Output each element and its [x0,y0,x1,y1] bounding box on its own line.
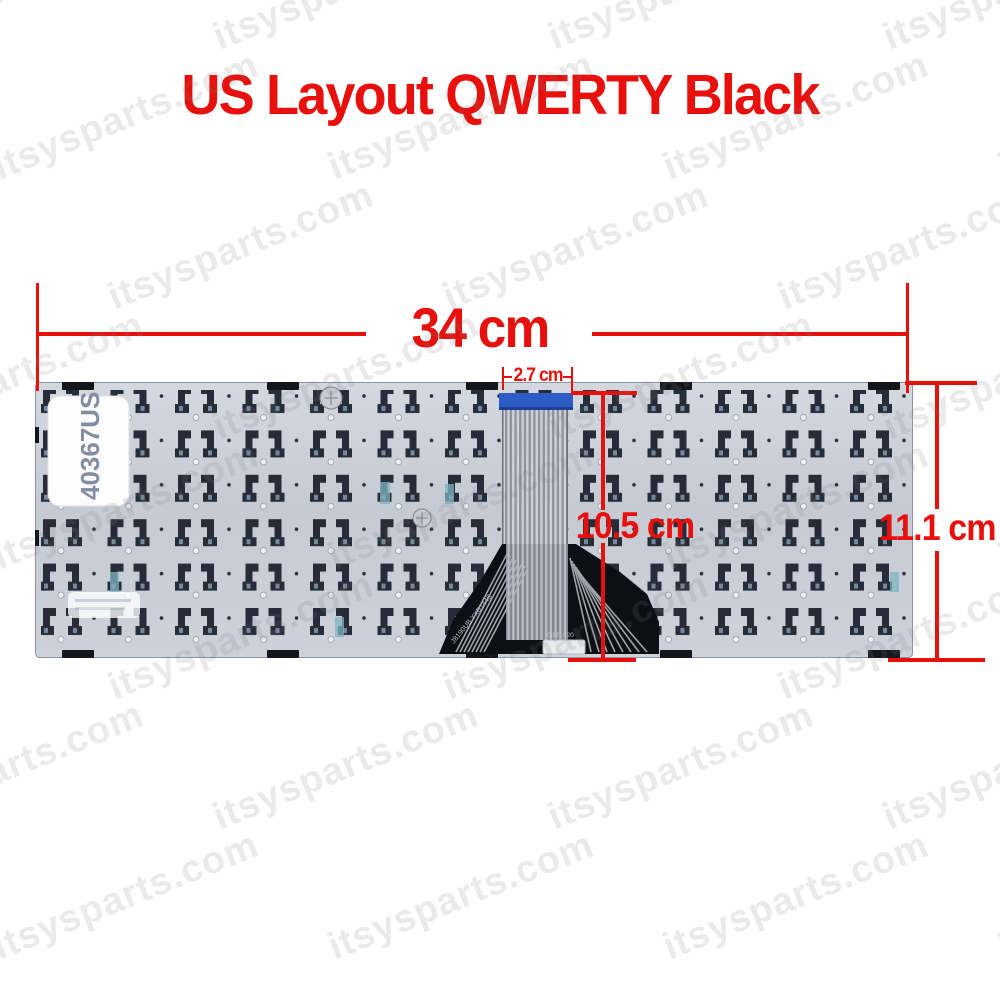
cable-length-label: 10.5 cm [575,507,695,544]
watermark-text: itsysparts.com [542,694,820,840]
watermark-text: itsysparts.com [0,0,150,59]
cable-width-tick-left [502,367,504,390]
watermark-text: itsysparts.com [992,44,1000,190]
height-dim-tick-bottom [888,658,985,662]
watermark-text: itsysparts.com [322,824,600,970]
height-dim-line-lower [935,551,939,661]
keyboard-back-photo: 40367US J8190UB YXB144S G1 [35,382,913,658]
height-dim-line-upper [935,381,939,509]
page-title: US Layout QWERTY Black [25,64,975,127]
flex-connector [543,640,585,654]
part-number-text: 40367US [75,392,105,500]
watermark-text: itsysparts.com [0,694,150,840]
cable-length-line-upper [601,391,605,510]
watermark-text: itsysparts.com [0,824,265,970]
watermark-text: itsysparts.com [657,824,935,970]
part-number-sticker: 40367US [48,392,129,506]
width-dim-label: 34 cm [379,300,581,356]
watermark-text: itsysparts.com [877,0,1000,59]
product-photo: US Layout QWERTY Black [0,0,1000,1000]
width-dim-line-left [36,332,366,336]
spec-sticker [68,592,140,618]
watermark-text: itsysparts.com [877,694,1000,840]
watermark-text: itsysparts.com [207,694,485,840]
cable-width-label: 2.7 cm [507,366,570,385]
watermark-text: itsysparts.com [542,0,820,59]
ribbon-cable [502,409,568,544]
cable-length-line-lower [601,543,605,660]
ribbon-stiffener [499,393,573,409]
watermark-text: itsysparts.com [207,0,485,59]
height-dim-label: 11.1 cm [879,509,995,546]
watermark-text: itsysparts.com [992,824,1000,970]
watermark-text: itsysparts.com [772,174,1000,320]
flex-print-date: G181020 [547,632,574,639]
width-dim-tick-right [906,283,909,393]
width-dim-line-right [592,332,908,336]
height-dim-tick-top [905,381,977,385]
width-dim-tick-left [36,283,39,391]
cable-length-tick-bottom [568,658,636,662]
watermark-text: itsysparts.com [102,174,380,320]
